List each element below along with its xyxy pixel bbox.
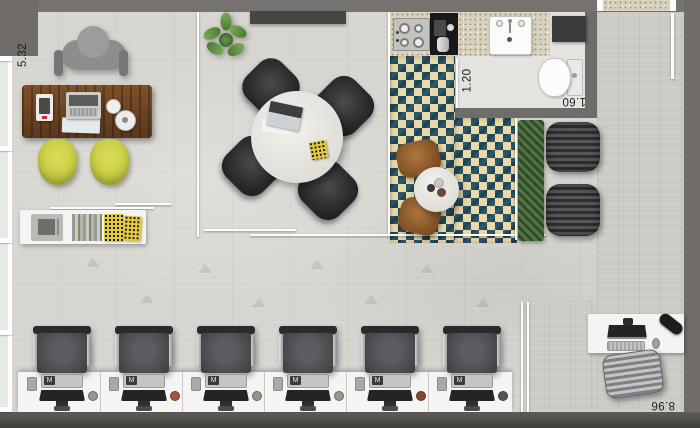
mug: [416, 391, 426, 401]
keyboard: M: [123, 374, 165, 388]
desk-phone: [273, 377, 283, 391]
task-chair: [361, 326, 419, 373]
mug: [252, 391, 262, 401]
reception-chair: [601, 348, 665, 400]
task-chair: [279, 326, 337, 373]
task-chair: [115, 326, 173, 373]
monitor: [285, 390, 331, 401]
monitor: [121, 390, 167, 401]
monitor: [203, 390, 249, 401]
monitor-base: [54, 406, 70, 411]
desk-phone: [437, 377, 447, 391]
workstation-4: M: [264, 0, 348, 428]
keyboard-badge: M: [290, 376, 301, 385]
desk-phone: [191, 377, 201, 391]
keyboard-badge: M: [454, 376, 465, 385]
dim-office-width: 5.32: [17, 33, 31, 77]
mug: [88, 391, 98, 401]
monitor-base: [300, 406, 316, 411]
workstation-5: M: [346, 0, 430, 428]
dim-wc-width: 1.20: [462, 61, 475, 101]
desk-divider: [182, 372, 183, 412]
monitor: [39, 390, 85, 401]
mug: [170, 391, 180, 401]
reception-desk: [588, 314, 684, 353]
desk-divider: [428, 372, 429, 412]
mug: [334, 391, 344, 401]
workstations: MMMMMM: [0, 0, 700, 428]
keyboard-badge: M: [126, 376, 137, 385]
keyboard: M: [205, 374, 247, 388]
monitor: [449, 390, 495, 401]
floor-plan: MMMMMM 5.32 1.20 1.60 8.96: [0, 0, 700, 428]
dim-wc-depth: 1.60: [556, 94, 592, 107]
reception-monitor: [607, 325, 647, 339]
keyboard-badge: M: [208, 376, 219, 385]
mouse: [652, 338, 660, 349]
keyboard: M: [369, 374, 411, 388]
monitor-base: [382, 406, 398, 411]
mug: [498, 391, 508, 401]
keyboard: M: [451, 374, 493, 388]
monitor-base: [136, 406, 152, 411]
phone: [657, 311, 685, 336]
task-chair: [197, 326, 255, 373]
desk-phone: [355, 377, 365, 391]
desk-divider: [264, 372, 265, 412]
keyboard: M: [41, 374, 83, 388]
webcam: [623, 318, 633, 325]
keyboard-badge: M: [372, 376, 383, 385]
task-chair: [33, 326, 91, 373]
desk-divider: [346, 372, 347, 412]
monitor-base: [218, 406, 234, 411]
monitor-base: [464, 406, 480, 411]
reception-keyboard: [607, 341, 645, 351]
keyboard: M: [287, 374, 329, 388]
keyboard-badge: M: [44, 376, 55, 385]
monitor: [367, 390, 413, 401]
task-chair: [443, 326, 501, 373]
desk-divider: [100, 372, 101, 412]
workstation-3: M: [182, 0, 266, 428]
workstation-2: M: [100, 0, 184, 428]
desk-phone: [27, 377, 37, 391]
dim-open-area-width: 8.96: [644, 397, 682, 411]
desk-phone: [109, 377, 119, 391]
